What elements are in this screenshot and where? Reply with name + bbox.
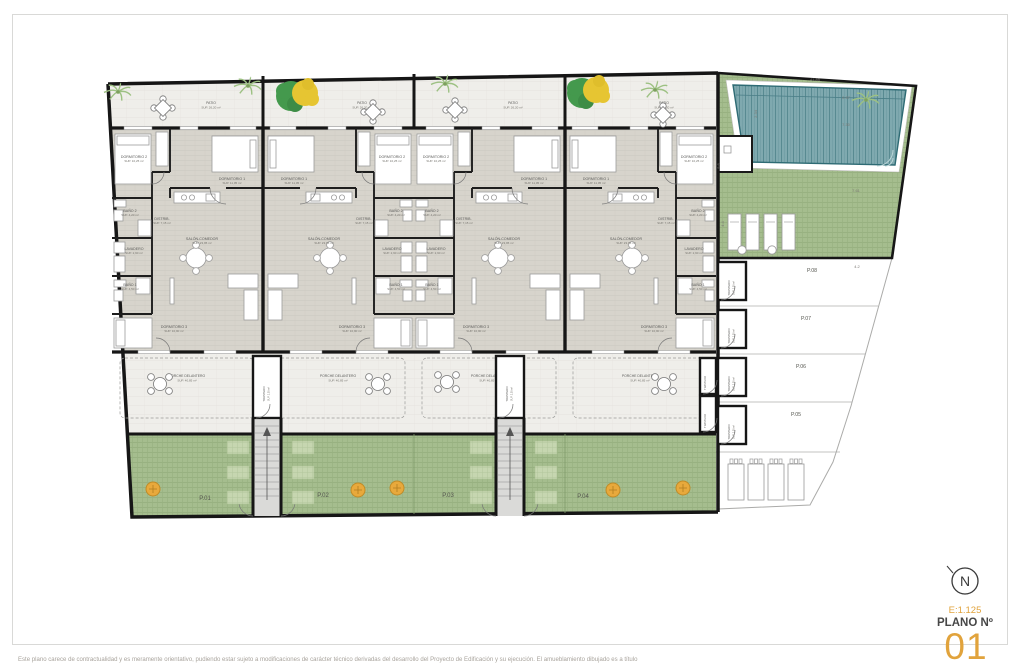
porch-label: PORCHE DELANTERO xyxy=(320,374,357,378)
lounger-body xyxy=(746,214,759,250)
plot-label: P.02 xyxy=(317,493,329,499)
storage-label: TRASTERO xyxy=(727,328,731,344)
storage-label: TRASTERO xyxy=(727,280,731,296)
room-sup-label: SUP. 4,20 m² xyxy=(423,213,441,217)
dimension-label: 7.30 xyxy=(842,122,851,127)
room-label: DISTRIB. xyxy=(456,217,471,221)
storage-label: TRASTERO xyxy=(727,328,731,344)
room-sup-label: SUP. 23,95 m² xyxy=(494,241,513,245)
dimension-label: 7.61 xyxy=(852,188,861,193)
storage-walls xyxy=(700,396,716,432)
furniture xyxy=(116,320,125,346)
porch-sup-label: SUP. 40,85 m² xyxy=(328,378,347,382)
room-label: DISTRIB. xyxy=(658,217,673,221)
room-sup-label: SUP. 11,05 m² xyxy=(586,181,605,185)
room-label: DISTRIB. xyxy=(658,217,673,221)
room-label: DORMITORIO 2 xyxy=(121,155,147,159)
storage-sup-label: SUP. 2,05 m² xyxy=(733,281,736,295)
patio-label: PATIO xyxy=(206,101,216,105)
furniture xyxy=(403,290,412,301)
furniture xyxy=(352,278,356,304)
plot-label: P.04 xyxy=(577,494,589,500)
chair xyxy=(453,372,460,379)
window xyxy=(440,350,472,353)
planter xyxy=(470,466,492,479)
room-sup-label: SUP. 11,05 m² xyxy=(524,181,543,185)
plot-label: P.05 xyxy=(791,412,801,418)
storage-room: TRASTERO xyxy=(700,358,717,394)
storage-sup-label: SUP. 2,05 m² xyxy=(733,377,736,391)
furniture xyxy=(117,136,149,145)
room-sup-label: SUP. 4,50 m² xyxy=(387,287,405,291)
furniture xyxy=(483,195,488,200)
room-label: BAÑO 2 xyxy=(691,208,704,213)
room-sup-label: SUP. 11,05 m² xyxy=(284,181,303,185)
pool-side-table xyxy=(768,246,776,254)
room-sup-label: SUP. 4,20 m² xyxy=(121,213,139,217)
room-label: SALÓN-COMEDOR xyxy=(488,236,521,241)
furniture xyxy=(268,274,298,288)
room-sup-label: SUP. 2,90 m² xyxy=(427,251,445,255)
furniture xyxy=(136,278,150,294)
room-sup-label: SUP. 10,90 m² xyxy=(644,329,663,333)
chair xyxy=(148,388,155,395)
chair xyxy=(670,374,677,381)
palm-trunk xyxy=(653,88,657,92)
window xyxy=(658,350,690,353)
site-plan-svg: DORMITORIO 2SUP. 10,25 m²DORMITORIO 1SUP… xyxy=(0,0,1020,670)
furniture xyxy=(314,255,321,262)
stall-mark xyxy=(759,459,762,464)
furniture xyxy=(114,242,125,253)
furniture xyxy=(340,255,347,262)
storage-walls xyxy=(253,356,281,418)
furniture xyxy=(375,220,388,236)
planter xyxy=(535,441,557,454)
tree-canopy xyxy=(305,92,319,106)
room-sup-label: SUP. 10,90 m² xyxy=(466,329,485,333)
room-label: DORMITORIO 2 xyxy=(379,155,405,159)
room-sup-label: SUP. 11,05 m² xyxy=(284,181,303,185)
furniture xyxy=(401,256,412,272)
lounger-body xyxy=(782,214,795,250)
window xyxy=(426,126,454,129)
room-sup-label: SUP. 7,15 m² xyxy=(657,221,675,225)
room-sup-label: SUP. 10,90 m² xyxy=(342,329,361,333)
storage-walls xyxy=(700,358,716,394)
room-label: DORMITORIO 2 xyxy=(681,155,707,159)
table xyxy=(372,378,385,391)
plot-label: P.04 xyxy=(577,494,589,500)
furniture xyxy=(250,140,256,168)
furniture xyxy=(677,220,690,236)
furniture xyxy=(186,248,206,268)
furniture xyxy=(181,195,186,200)
room-sup-label: SUP. 4,20 m² xyxy=(689,213,707,217)
sun-lounger xyxy=(728,214,741,250)
storage-room: TRASTEROSUP. 2,05 m² xyxy=(718,262,746,300)
parking-stall xyxy=(728,459,744,500)
room-label: DORMITORIO 3 xyxy=(339,325,365,329)
parking-stall xyxy=(768,459,784,500)
stall-mark xyxy=(755,459,758,464)
room-label: DORMITORIO 1 xyxy=(583,177,609,181)
room-label: DORMITORIO 1 xyxy=(583,177,609,181)
window xyxy=(374,126,402,129)
room-sup-label: SUP. 23,95 m² xyxy=(314,241,333,245)
room-sup-label: SUP. 10,25 m² xyxy=(426,159,445,163)
furniture xyxy=(401,320,410,346)
furniture xyxy=(419,136,451,145)
room-sup-label: SUP. 11,05 m² xyxy=(524,181,543,185)
room-label: BAÑO 1 xyxy=(691,282,704,287)
palm-trunk xyxy=(246,84,250,88)
window xyxy=(572,126,598,129)
room-label: LAVADERO xyxy=(124,247,143,251)
room-label: LAVADERO xyxy=(684,247,703,251)
room-sup-label: SUP. 7,15 m² xyxy=(355,221,373,225)
patio-label: PATIO xyxy=(357,101,367,105)
porch-label: PORCHE DELANTERO xyxy=(169,374,206,378)
room-label: DORMITORIO 3 xyxy=(641,325,667,329)
porch-sup-label: SUP. 40,85 m² xyxy=(177,378,196,382)
furniture xyxy=(377,136,409,145)
orange-tree-icon xyxy=(146,482,160,496)
porch-label: PORCHE DELANTERO xyxy=(320,374,357,378)
tree-canopy xyxy=(593,75,605,87)
pool-house xyxy=(718,136,752,172)
room-sup-label: SUP. 23,95 m² xyxy=(616,241,635,245)
room-label: BAÑO 1 xyxy=(425,282,438,287)
room-sup-label: SUP. 10,25 m² xyxy=(684,159,703,163)
sun-lounger xyxy=(782,214,795,250)
storage-sup-label: SUP. 2,05 m² xyxy=(733,329,736,343)
dimension-label: 4.4 xyxy=(720,220,725,226)
storage-label: TRASTERO xyxy=(704,376,707,390)
dimension-label: 4.2 xyxy=(854,264,860,269)
plot-label: P.03 xyxy=(442,493,454,499)
tree-canopy xyxy=(302,78,314,90)
room-sup-label: SUP. 2,90 m² xyxy=(125,251,143,255)
storage-label: TRASTERO xyxy=(262,386,266,402)
room-label: DORMITORIO 1 xyxy=(281,177,307,181)
patio-sup-label: SUP. 26,20 m² xyxy=(201,105,220,109)
room-label: BAÑO 1 xyxy=(691,282,704,287)
room-label: SALÓN-COMEDOR xyxy=(308,236,341,241)
furniture xyxy=(616,255,623,262)
room-sup-label: SUP. 4,50 m² xyxy=(423,287,441,291)
front-lawn xyxy=(127,434,716,517)
tree-canopy xyxy=(276,83,292,99)
room-sup-label: SUP. 10,25 m² xyxy=(382,159,401,163)
room-sup-label: SUP. 23,95 m² xyxy=(314,241,333,245)
storage-walls xyxy=(496,356,524,418)
plot-label: P.07 xyxy=(801,316,811,322)
room-sup-label: SUP. 2,90 m² xyxy=(685,251,703,255)
window xyxy=(532,126,558,129)
tree-canopy xyxy=(596,89,610,103)
storage-label: TRASTERO xyxy=(727,376,731,392)
furniture xyxy=(472,278,476,304)
planter xyxy=(292,466,314,479)
stall-mark xyxy=(799,459,802,464)
chair xyxy=(652,374,659,381)
furniture xyxy=(339,195,344,200)
furniture xyxy=(138,220,151,236)
room-label: SALÓN-COMEDOR xyxy=(488,236,521,241)
room-sup-label: SUP. 10,90 m² xyxy=(644,329,663,333)
room-sup-label: SUP. 4,50 m² xyxy=(387,287,405,291)
room-label: BAÑO 2 xyxy=(389,208,402,213)
dimension-label: 2.34 xyxy=(753,109,758,118)
palm-trunk xyxy=(116,90,120,94)
room-sup-label: SUP. 7,15 m² xyxy=(657,221,675,225)
room-sup-label: SUP. 2,90 m² xyxy=(125,251,143,255)
room-label: LAVADERO xyxy=(124,247,143,251)
porch-sup-label: SUP. 40,85 m² xyxy=(630,378,649,382)
stall-mark xyxy=(730,459,733,464)
furniture xyxy=(416,200,428,207)
room-sup-label: SUP. 2,90 m² xyxy=(383,251,401,255)
storage-sup-label: SUP. 2,05 m² xyxy=(733,425,736,439)
room-sup-label: SUP. 11,05 m² xyxy=(222,181,241,185)
patio-sup-label: SUP. 26,20 m² xyxy=(503,105,522,109)
lounger-body xyxy=(764,214,777,250)
room-label: SALÓN-COMEDOR xyxy=(610,236,643,241)
room-label: DISTRIB. xyxy=(154,217,169,221)
room-sup-label: SUP. 7,15 m² xyxy=(153,221,171,225)
furniture xyxy=(180,255,187,262)
furniture xyxy=(703,320,712,346)
furniture xyxy=(642,255,649,262)
furniture xyxy=(400,200,412,207)
storage-label: TRASTERO xyxy=(727,424,731,440)
dimension-label: 41.85 xyxy=(810,77,821,82)
chair xyxy=(384,388,391,395)
dimension-label: 7.61 xyxy=(852,188,861,193)
furniture xyxy=(678,278,692,294)
storage-label: TRASTERO xyxy=(727,280,731,296)
plot-label: P.02 xyxy=(317,493,329,499)
sun-lounger xyxy=(746,214,759,250)
window xyxy=(506,350,538,353)
storage-label: TRASTERO xyxy=(704,414,707,428)
dimension-label: 4.4 xyxy=(720,220,725,226)
furniture xyxy=(206,255,213,262)
window xyxy=(482,126,500,129)
window xyxy=(204,350,236,353)
disclaimer: Este plano carece de contractualidad y e… xyxy=(18,657,638,663)
planter xyxy=(470,441,492,454)
orange-tree-icon xyxy=(676,481,690,495)
storage-label: TRASTERO xyxy=(505,386,509,402)
dimension-label: 0.97 xyxy=(842,95,851,100)
furniture xyxy=(331,195,336,200)
room-sup-label: SUP. 23,95 m² xyxy=(192,241,211,245)
room-label: SALÓN-COMEDOR xyxy=(308,236,341,241)
room-label: DORMITORIO 1 xyxy=(521,177,547,181)
furniture xyxy=(170,278,174,304)
planter xyxy=(227,441,249,454)
patio-label: PATIO xyxy=(357,101,367,105)
room-label: SALÓN-COMEDOR xyxy=(186,236,219,241)
storage-sup-label: SUP. 2,05 m² xyxy=(733,377,736,391)
room-label: DORMITORIO 3 xyxy=(463,325,489,329)
room-sup-label: SUP. 4,50 m² xyxy=(121,287,139,291)
plot-label: P.01 xyxy=(199,496,211,502)
furniture xyxy=(705,290,714,301)
chair xyxy=(384,374,391,381)
room-label: SALÓN-COMEDOR xyxy=(610,236,643,241)
room-sup-label: SUP. 10,25 m² xyxy=(124,159,143,163)
plot-label: P.06 xyxy=(796,364,806,370)
patio-sup-label: SUP. 26,20 m² xyxy=(503,105,522,109)
window xyxy=(180,126,198,129)
furniture xyxy=(703,242,714,253)
room-label: DISTRIB. xyxy=(356,217,371,221)
scale-label: E:1.125 xyxy=(949,605,982,616)
furniture xyxy=(376,278,390,294)
window xyxy=(328,126,346,129)
room-label: DORMITORIO 2 xyxy=(423,155,449,159)
room-label: BAÑO 1 xyxy=(425,282,438,287)
furniture xyxy=(228,274,258,288)
room-sup-label: SUP. 7,15 m² xyxy=(455,221,473,225)
dimension-label: 2.34 xyxy=(753,109,758,118)
svg-text:Este plano carece de contractu: Este plano carece de contractualidad y e… xyxy=(18,657,638,663)
planter xyxy=(470,491,492,504)
table xyxy=(658,378,671,391)
planter xyxy=(535,491,557,504)
storage-sup-label: SUP. 2,05 m² xyxy=(268,387,271,401)
porch-sup-label: SUP. 40,85 m² xyxy=(328,378,347,382)
north-letter: N xyxy=(960,573,970,589)
furniture xyxy=(570,274,600,288)
room-sup-label: SUP. 4,20 m² xyxy=(689,213,707,217)
room-label: BAÑO 2 xyxy=(425,208,438,213)
furniture xyxy=(156,132,168,166)
room-sup-label: SUP. 10,90 m² xyxy=(164,329,183,333)
room-label: BAÑO 2 xyxy=(691,208,704,213)
furniture xyxy=(114,200,126,207)
room-label: DISTRIB. xyxy=(356,217,371,221)
chair xyxy=(366,388,373,395)
window xyxy=(124,126,152,129)
storage-label: TRASTERO xyxy=(704,376,707,390)
chair xyxy=(435,372,442,379)
plot-label: P.07 xyxy=(801,316,811,322)
stall-mark xyxy=(775,459,778,464)
storage-sup-label: SUP. 2,05 m² xyxy=(268,387,271,401)
storage-room: TRASTERO xyxy=(700,396,717,432)
chair xyxy=(148,374,155,381)
room-sup-label: SUP. 4,20 m² xyxy=(121,213,139,217)
porch-label: PORCHE DELANTERO xyxy=(169,374,206,378)
furniture xyxy=(641,195,646,200)
stall xyxy=(728,464,744,500)
plot-label: P.01 xyxy=(199,496,211,502)
storage-sup-label: SUP. 2,05 m² xyxy=(511,387,514,401)
room-sup-label: SUP. 4,50 m² xyxy=(423,287,441,291)
plot-label: P.05 xyxy=(791,412,801,418)
room-sup-label: SUP. 2,90 m² xyxy=(383,251,401,255)
window xyxy=(230,126,256,129)
furniture xyxy=(629,268,636,275)
room-sup-label: SUP. 10,90 m² xyxy=(466,329,485,333)
room-label: DORMITORIO 2 xyxy=(423,155,449,159)
room-label: DORMITORIO 3 xyxy=(641,325,667,329)
furniture xyxy=(320,248,340,268)
furniture xyxy=(613,194,622,201)
patio-sup-label: SUP. 26,20 m² xyxy=(201,105,220,109)
stall-mark xyxy=(739,459,742,464)
room-sup-label: SUP. 10,90 m² xyxy=(164,329,183,333)
window xyxy=(270,126,296,129)
room-label: LAVADERO xyxy=(382,247,401,251)
room-sup-label: SUP. 4,50 m² xyxy=(121,287,139,291)
storage-room: TRASTEROSUP. 2,05 m² xyxy=(718,406,746,444)
room-sup-label: SUP. 4,50 m² xyxy=(689,287,707,291)
stall xyxy=(788,464,804,500)
room-label: DORMITORIO 2 xyxy=(681,155,707,159)
orange-tree-icon xyxy=(390,481,404,495)
storage-sup-label: SUP. 2,05 m² xyxy=(733,329,736,343)
patio-label: PATIO xyxy=(206,101,216,105)
furniture xyxy=(458,132,470,166)
chair xyxy=(166,388,173,395)
room-sup-label: SUP. 7,15 m² xyxy=(455,221,473,225)
room-sup-label: SUP. 11,05 m² xyxy=(586,181,605,185)
planter xyxy=(292,491,314,504)
room-sup-label: SUP. 10,25 m² xyxy=(382,159,401,163)
storage-room: TRASTEROSUP. 2,05 m² xyxy=(253,356,281,418)
room-sup-label: SUP. 4,20 m² xyxy=(387,213,405,217)
furniture xyxy=(702,200,714,207)
palm-trunk xyxy=(443,82,447,86)
room-label: BAÑO 2 xyxy=(425,208,438,213)
north-indicator: N xyxy=(947,566,978,594)
dimension-label: 4.2 xyxy=(854,264,860,269)
floor-plan-page: DORMITORIO 2SUP. 10,25 m²DORMITORIO 1SUP… xyxy=(0,0,1020,670)
furniture xyxy=(401,242,412,253)
storage-room: TRASTEROSUP. 2,05 m² xyxy=(718,358,746,396)
furniture xyxy=(654,278,658,304)
stall-mark xyxy=(790,459,793,464)
room-sup-label: SUP. 4,20 m² xyxy=(387,213,405,217)
chair xyxy=(435,386,442,393)
porch-sup-label: SUP. 40,85 m² xyxy=(630,378,649,382)
dimension-label: 41.85 xyxy=(810,77,821,82)
chair xyxy=(652,388,659,395)
storage-label: TRASTERO xyxy=(727,376,731,392)
window xyxy=(630,126,648,129)
lounger-body xyxy=(728,214,741,250)
room-label: DISTRIB. xyxy=(456,217,471,221)
furniture xyxy=(416,290,425,301)
dimension-label: 0.97 xyxy=(842,95,851,100)
furniture xyxy=(270,140,276,168)
furniture xyxy=(552,140,558,168)
chair xyxy=(670,388,677,395)
room-label: DORMITORIO 3 xyxy=(161,325,187,329)
pool-side-table xyxy=(738,246,746,254)
storage-label: TRASTERO xyxy=(505,386,509,402)
room-label: DORMITORIO 1 xyxy=(219,177,245,181)
stall-mark xyxy=(750,459,753,464)
room-sup-label: SUP. 2,90 m² xyxy=(685,251,703,255)
furniture xyxy=(679,136,711,145)
storage-room: TRASTEROSUP. 2,05 m² xyxy=(496,356,524,418)
